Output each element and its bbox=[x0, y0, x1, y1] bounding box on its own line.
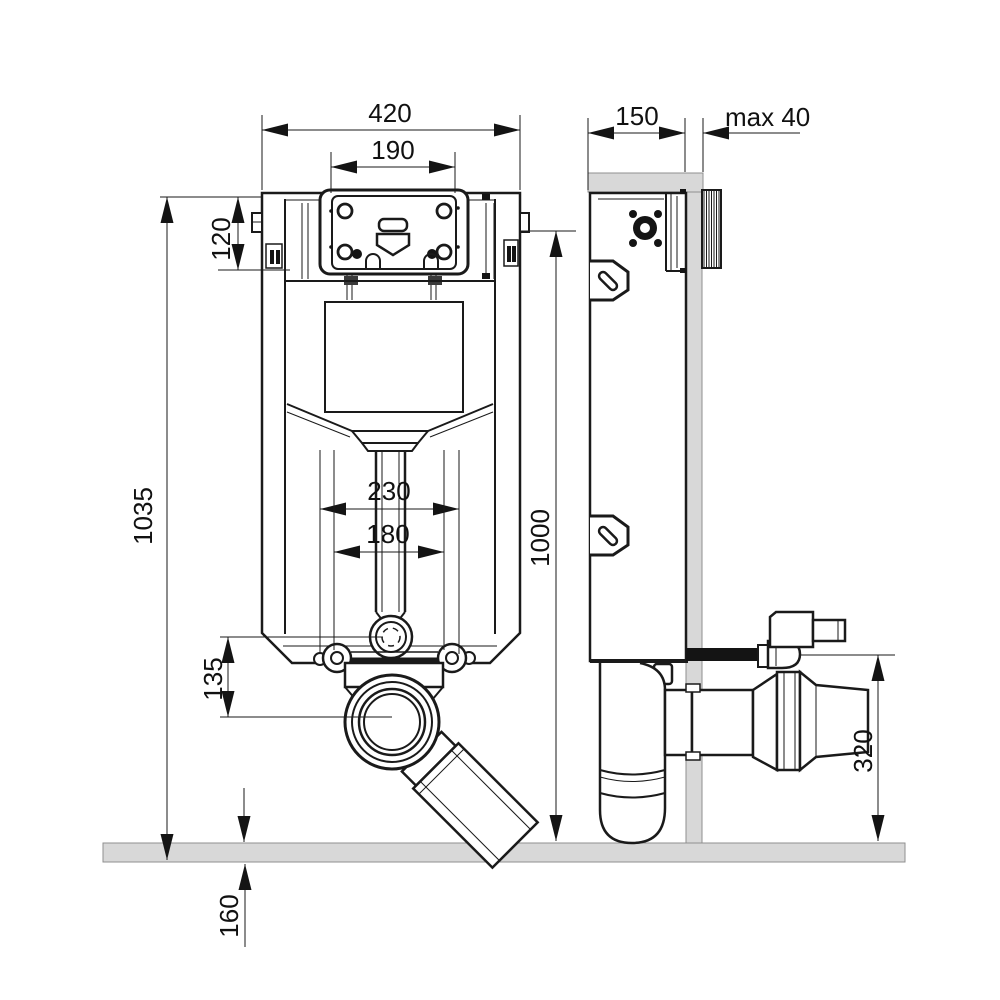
installation-drawing-page: 420 190 150 max 40 120 bbox=[0, 0, 1000, 1000]
drain-elbow bbox=[600, 663, 692, 843]
dim-label-frame-height: 1035 bbox=[128, 487, 158, 545]
dim-label-below-floor: 160 bbox=[214, 894, 244, 937]
flush-pipe-connection bbox=[686, 612, 845, 668]
dim-label-fixing-span-outer: 230 bbox=[367, 476, 410, 506]
dim-label-flush-center-height: 1000 bbox=[525, 509, 555, 567]
technical-drawing: 420 190 150 max 40 120 bbox=[0, 0, 1000, 1000]
dim-label-frame-depth: 150 bbox=[615, 101, 658, 131]
dim-label-frame-width: 420 bbox=[368, 98, 411, 128]
drain-outlet bbox=[345, 663, 538, 868]
dim-label-fixing-span-inner: 180 bbox=[366, 519, 409, 549]
dim-flush-opening-width: 190 bbox=[331, 135, 455, 193]
dim-wall-finish: max 40 bbox=[703, 102, 810, 172]
dim-label-flush-opening-width: 190 bbox=[371, 135, 414, 165]
dim-label-outlet-height: 320 bbox=[848, 729, 878, 772]
mounting-bracket-lower bbox=[590, 516, 628, 555]
lever-slot bbox=[379, 219, 407, 231]
dim-outlet-height: 320 bbox=[848, 655, 878, 841]
dim-label-outlet-offset: 135 bbox=[198, 657, 228, 700]
dim-below-floor: 160 bbox=[214, 788, 245, 947]
wall-anchor-right bbox=[520, 213, 529, 232]
mounting-bracket-upper bbox=[590, 261, 628, 300]
outlet-connector bbox=[686, 672, 868, 770]
flush-plate-housing bbox=[702, 190, 721, 268]
dim-flush-center-height: 1000 bbox=[520, 231, 576, 841]
dim-frame-height: 1035 bbox=[128, 197, 167, 860]
bottom-bolt-left bbox=[352, 249, 362, 259]
dim-label-flush-box-height: 120 bbox=[206, 217, 236, 260]
dim-label-wall-finish: max 40 bbox=[725, 102, 810, 132]
